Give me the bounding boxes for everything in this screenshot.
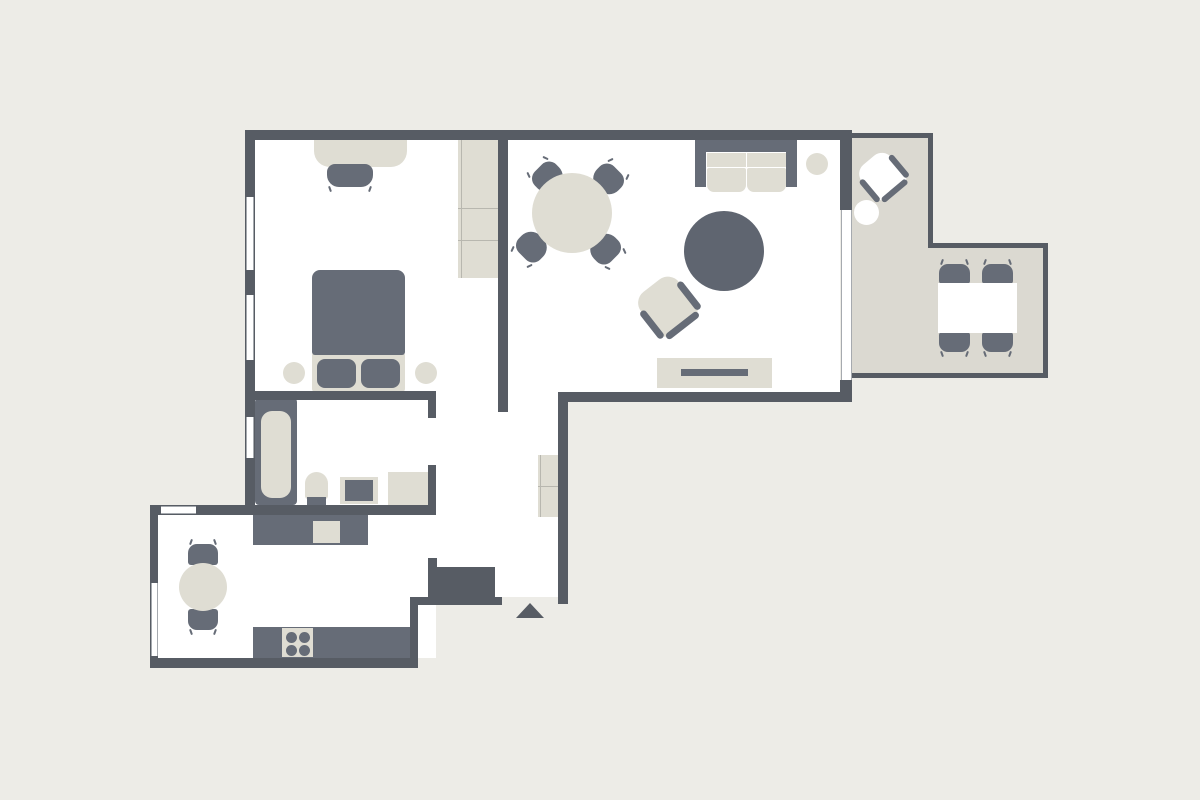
sofa-arm-right <box>786 140 797 187</box>
window-bedroom-1 <box>246 197 254 270</box>
balcony-table <box>938 283 1017 333</box>
bed-pillow-left <box>317 359 356 388</box>
sofa-side-table <box>806 153 828 175</box>
wall-top <box>245 130 852 140</box>
tv <box>681 369 748 376</box>
balcony-chair-2 <box>982 264 1013 284</box>
sofa-cushion-back-left <box>707 153 746 167</box>
kitchen-counter-top <box>253 513 368 545</box>
kitchen-chair-top <box>188 544 218 565</box>
balcony-rail-right-lower <box>1043 243 1048 378</box>
wall-bedroom-bottom <box>255 391 436 400</box>
entrance-arrow <box>516 603 544 618</box>
nightstand-right <box>415 362 437 384</box>
entry-closet-stub <box>428 558 437 600</box>
hall-wardrobe-shelf-line <box>538 486 560 487</box>
window-bathroom <box>246 417 254 458</box>
window-kitchen-top <box>161 506 196 514</box>
sofa-cushion-back-right <box>747 153 786 167</box>
sink-basin <box>345 480 373 501</box>
floor-plan <box>0 0 1200 800</box>
wall-living-bottom <box>558 392 852 402</box>
wall-bathroom-right-upper <box>428 398 436 418</box>
bathtub-inner <box>261 411 291 498</box>
bedroom-wardrobe-shelf-line-1 <box>458 208 498 209</box>
stove-burner-4 <box>299 645 310 656</box>
stove-burner-2 <box>299 632 310 643</box>
window-bedroom-2 <box>246 295 254 360</box>
bedroom-wardrobe-shelf-line-2 <box>458 240 498 241</box>
balcony-rail-top <box>852 133 933 138</box>
balcony-side-table <box>854 200 879 225</box>
kitchen-table <box>179 563 227 611</box>
bedroom-wardrobe-side-line <box>461 140 462 278</box>
balcony-chair-1 <box>939 264 970 284</box>
sofa-cushion-seat-right <box>747 168 786 192</box>
round-rug <box>684 211 764 291</box>
dining-table <box>532 173 612 253</box>
desk-chair <box>327 164 373 187</box>
washing-machine <box>388 472 428 506</box>
balcony-chair-4 <box>982 332 1013 352</box>
entry-closet <box>437 567 495 597</box>
stove-burner-1 <box>286 632 297 643</box>
wall-kitchen-bottom <box>150 658 418 668</box>
stove-burner-3 <box>286 645 297 656</box>
balcony-door-window <box>841 210 852 380</box>
sofa-back <box>695 140 797 152</box>
balcony-rail-bottom <box>852 373 1048 378</box>
wall-entry-bottom <box>410 597 502 605</box>
sofa-arm-left <box>695 140 706 187</box>
balcony-chair-3 <box>939 332 970 352</box>
wall-hall-right <box>558 392 568 604</box>
desk <box>314 140 407 167</box>
wall-kitchen-right <box>410 597 418 668</box>
wall-living-right-lower <box>840 380 852 402</box>
sofa-cushion-seat-left <box>707 168 746 192</box>
bed-pillow-right <box>361 359 400 388</box>
nightstand-left <box>283 362 305 384</box>
kitchen-counter-bottom <box>253 627 412 658</box>
kitchen-chair-bottom <box>188 609 218 630</box>
window-kitchen-left <box>151 583 158 656</box>
balcony-rail-right-upper <box>928 133 933 248</box>
kitchen-sink <box>313 521 340 543</box>
toilet-bowl <box>305 472 328 499</box>
bedroom-wardrobe <box>458 140 498 278</box>
wall-bedroom-living-divider <box>498 140 508 412</box>
bed-duvet <box>312 270 405 355</box>
balcony-rail-middle <box>933 243 1048 248</box>
hall-wardrobe-side-line <box>540 455 541 517</box>
wall-living-right-upper <box>840 130 852 210</box>
